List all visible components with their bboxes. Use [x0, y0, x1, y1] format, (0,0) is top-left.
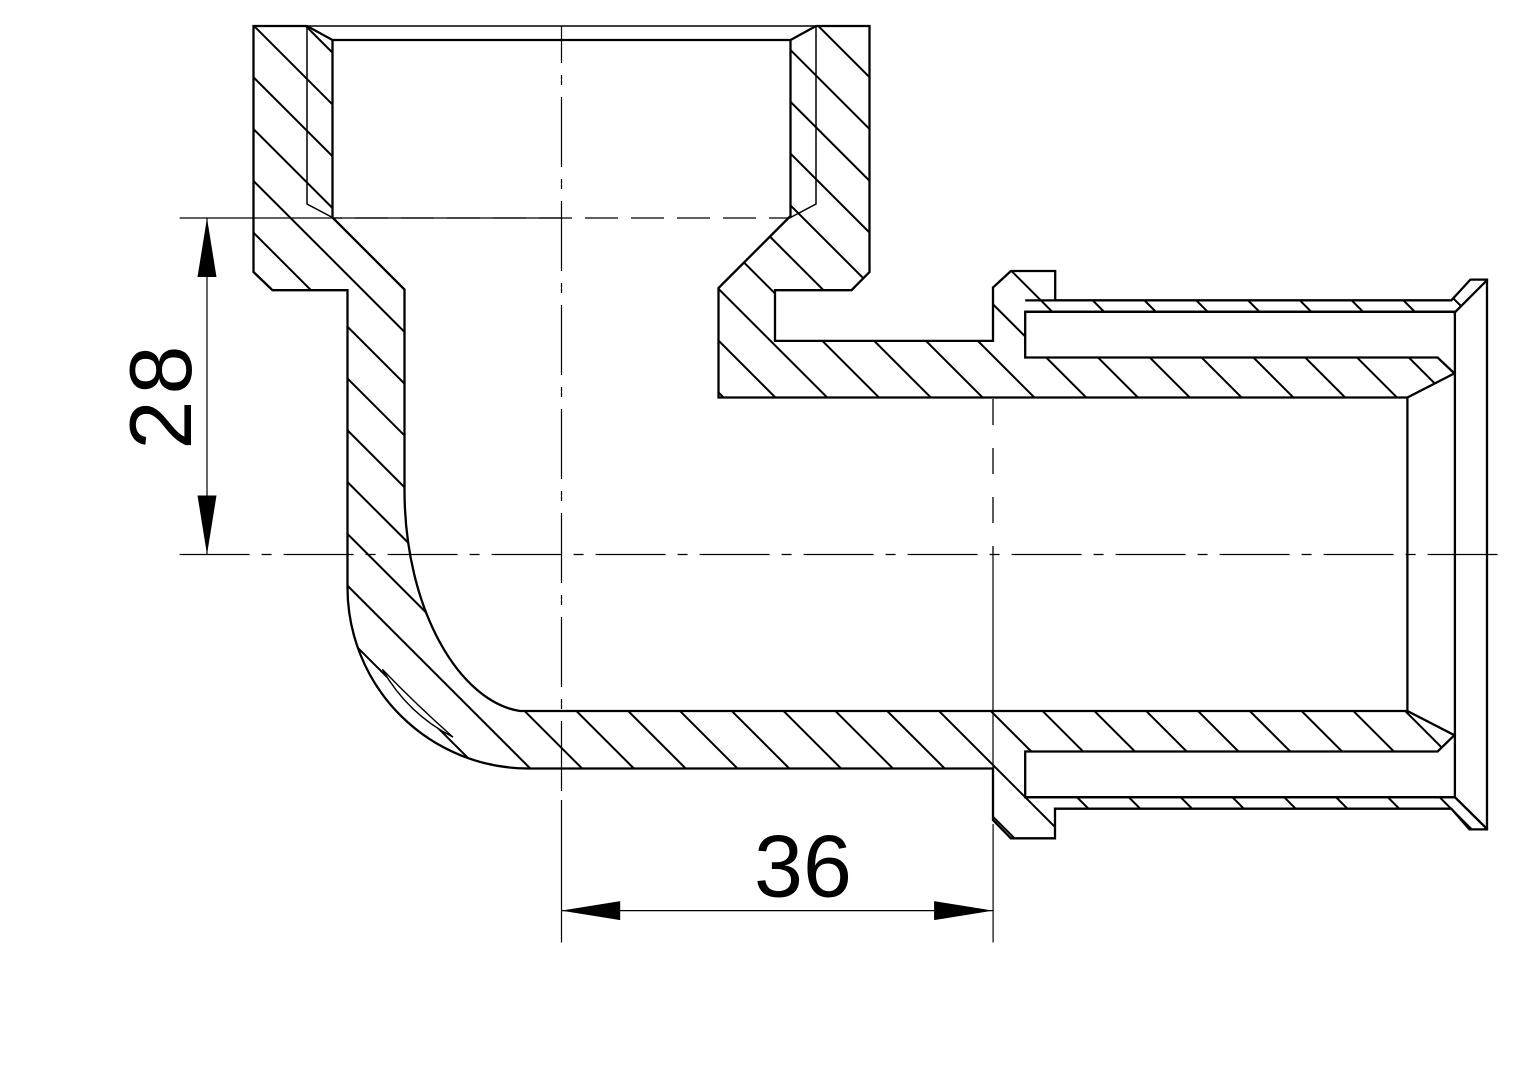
svg-text:36: 36: [754, 817, 852, 916]
svg-text:28: 28: [111, 340, 210, 450]
